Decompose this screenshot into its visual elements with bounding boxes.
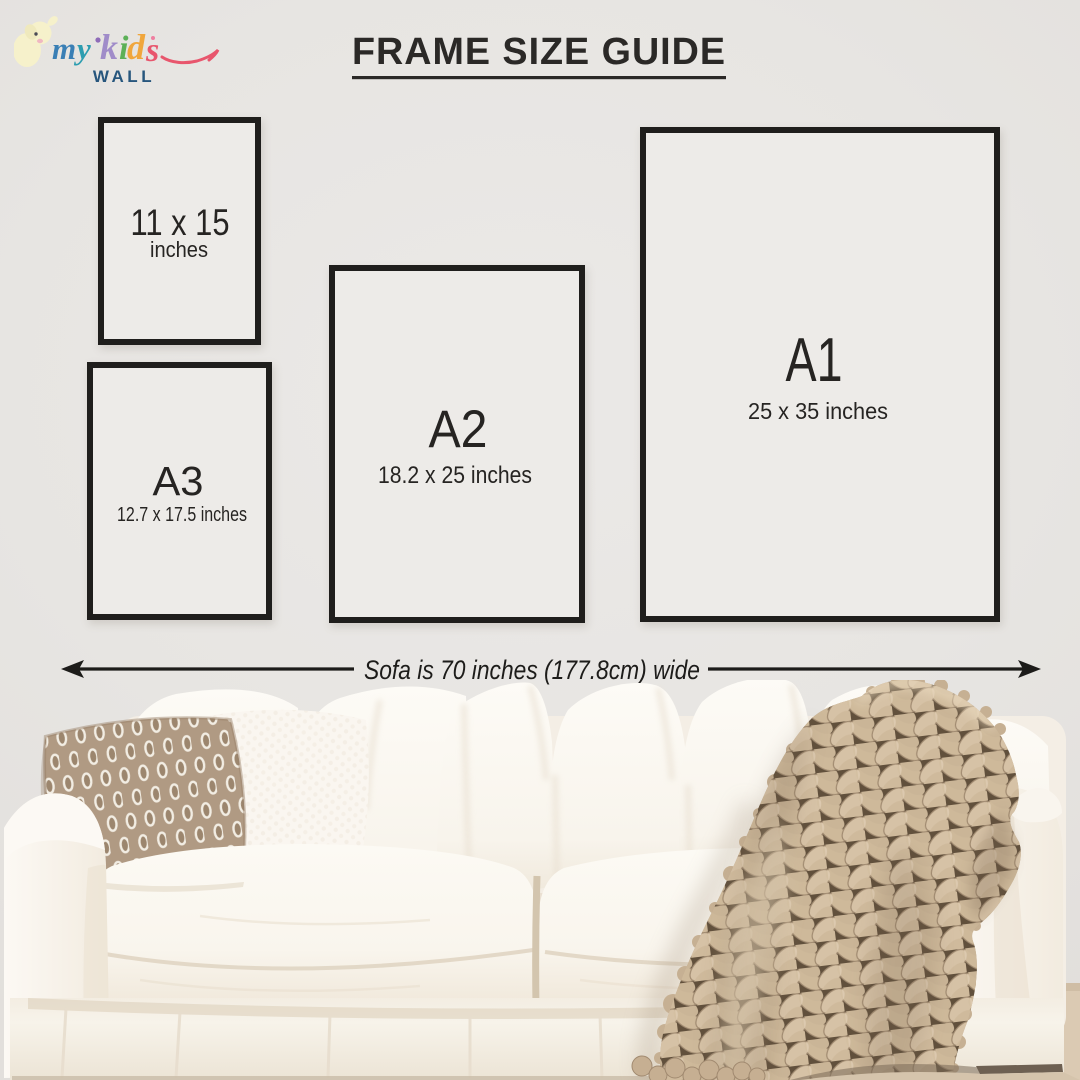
- svg-text:25 x 35 inches: 25 x 35 inches: [748, 398, 888, 424]
- svg-text:12.7 x 17.5 inches: 12.7 x 17.5 inches: [117, 504, 247, 526]
- svg-text:18.2 x 25 inches: 18.2 x 25 inches: [378, 462, 532, 489]
- svg-text:A2: A2: [429, 400, 488, 459]
- svg-text:FRAME SIZE GUIDE: FRAME SIZE GUIDE: [352, 31, 726, 73]
- svg-text:A1: A1: [786, 326, 843, 395]
- svg-text:inches: inches: [150, 237, 208, 262]
- svg-text:A3: A3: [153, 458, 204, 504]
